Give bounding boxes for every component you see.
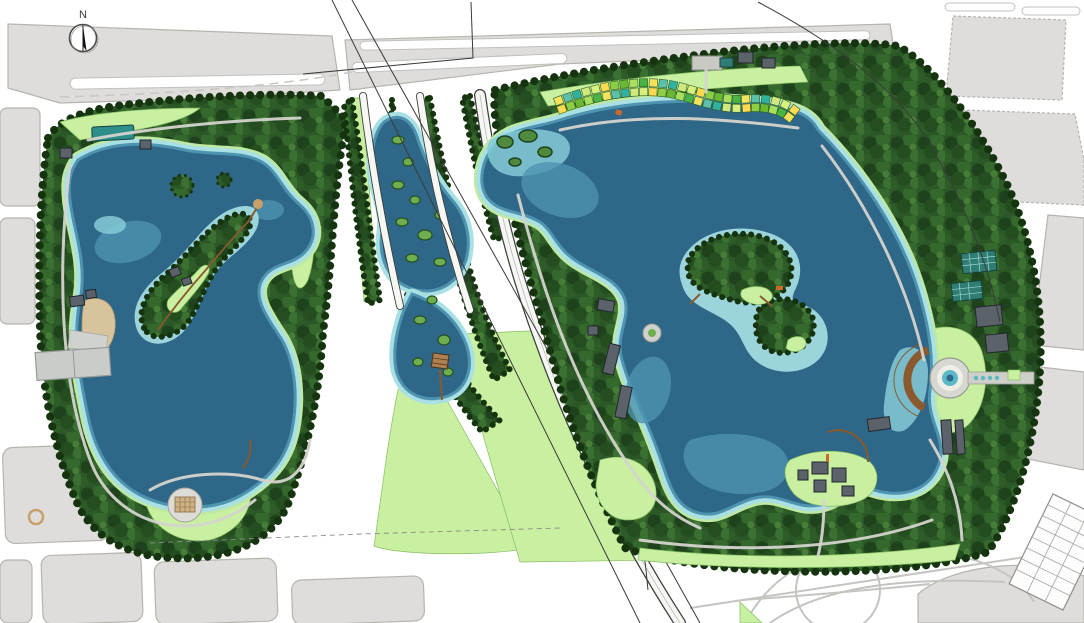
flower-bed-cell [712, 101, 722, 110]
flower-bed-cell [629, 79, 638, 88]
wetland-pavilion [431, 353, 449, 369]
flower-bed-cell [620, 80, 629, 89]
flower-bed-cell [602, 91, 612, 100]
city-block [291, 576, 424, 623]
flower-bed-cell [732, 95, 740, 103]
flower-bed-cell [649, 79, 658, 87]
shallow-patch [94, 216, 126, 234]
north-arrow: N [70, 9, 99, 53]
flower-bed-cell [741, 95, 750, 104]
flower-bed-cell [657, 88, 666, 97]
flower-bed-cell [722, 103, 731, 112]
islet [171, 175, 193, 197]
flower-bed-cell [659, 79, 668, 88]
flower-bed-cell [639, 79, 647, 87]
flower-bed-cell [610, 81, 619, 90]
building [867, 417, 890, 432]
flower-bed-cell [611, 90, 620, 99]
building [60, 148, 72, 158]
wetland-water [395, 294, 470, 399]
flower-bed-cell [714, 92, 724, 101]
city-block [154, 558, 278, 623]
master-plan-map: N [0, 0, 1084, 623]
flower-bed-cell [751, 95, 759, 103]
flower-bed-cell [600, 82, 610, 91]
building [85, 289, 96, 298]
flower-bed-cell [583, 95, 593, 105]
south-circular-plaza [168, 488, 202, 522]
flower-bed-cell [675, 91, 685, 101]
city-block [41, 552, 143, 623]
flower-bed-cell [760, 104, 769, 113]
flower-bed-cell [732, 104, 740, 112]
building [140, 140, 151, 149]
flower-bed-cell [742, 104, 751, 113]
islet [253, 199, 263, 209]
building [69, 295, 84, 307]
flower-bed-cell [630, 88, 639, 97]
city-block [0, 218, 35, 324]
islet [217, 173, 231, 187]
flower-bed-cell [591, 84, 601, 94]
city-block [0, 108, 40, 206]
city-block [0, 560, 32, 623]
dock [776, 286, 783, 290]
flower-bed-cell [751, 104, 759, 112]
flower-bed-cell [668, 80, 678, 90]
flower-bed-cell [761, 95, 770, 104]
flower-bed-cell [702, 99, 712, 109]
flower-bed-cell [723, 94, 732, 103]
master-plan-canvas: N [0, 0, 1084, 623]
flower-bed-cell [639, 88, 647, 96]
lawn-sliver [740, 602, 762, 623]
flower-bed-cell [677, 82, 687, 92]
city-block [946, 16, 1066, 100]
north-label: N [79, 9, 87, 21]
west-park [39, 95, 346, 559]
west-entry-pier [35, 347, 111, 380]
flag [826, 454, 829, 462]
flower-bed-cell [621, 89, 630, 98]
flower-bed-cell [649, 88, 658, 96]
flower-bed-cell [593, 93, 603, 103]
flower-bed-cell [581, 87, 591, 97]
flower-bed-cell [666, 89, 676, 99]
